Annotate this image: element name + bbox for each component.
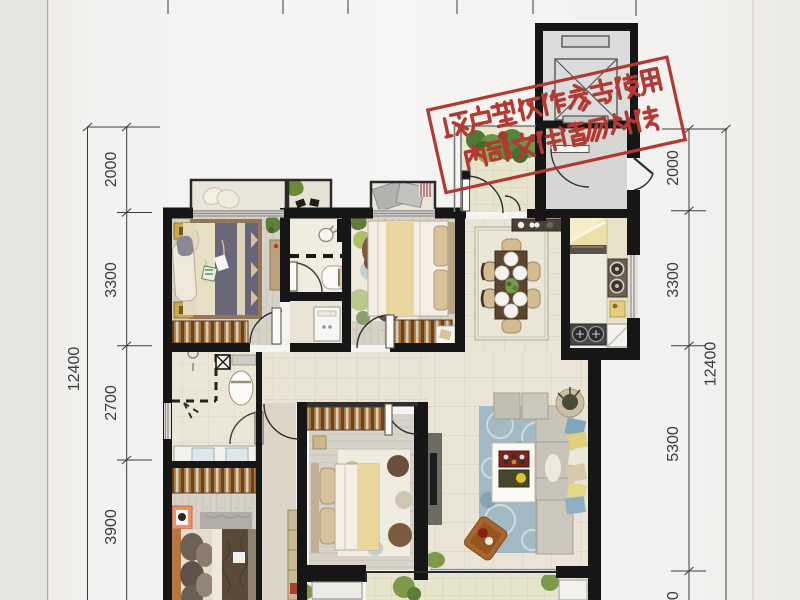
svg-text:12400: 12400 [703, 342, 720, 387]
svg-text:2700: 2700 [103, 385, 120, 421]
svg-text:2000: 2000 [103, 152, 120, 188]
svg-text:2000: 2000 [665, 150, 682, 186]
svg-text:3900: 3900 [103, 509, 120, 545]
svg-text:3300: 3300 [665, 262, 682, 298]
svg-text:5300: 5300 [665, 426, 682, 462]
svg-text:3300: 3300 [103, 262, 120, 298]
svg-text:12400: 12400 [66, 347, 83, 392]
svg-text:2000: 2000 [665, 591, 682, 600]
